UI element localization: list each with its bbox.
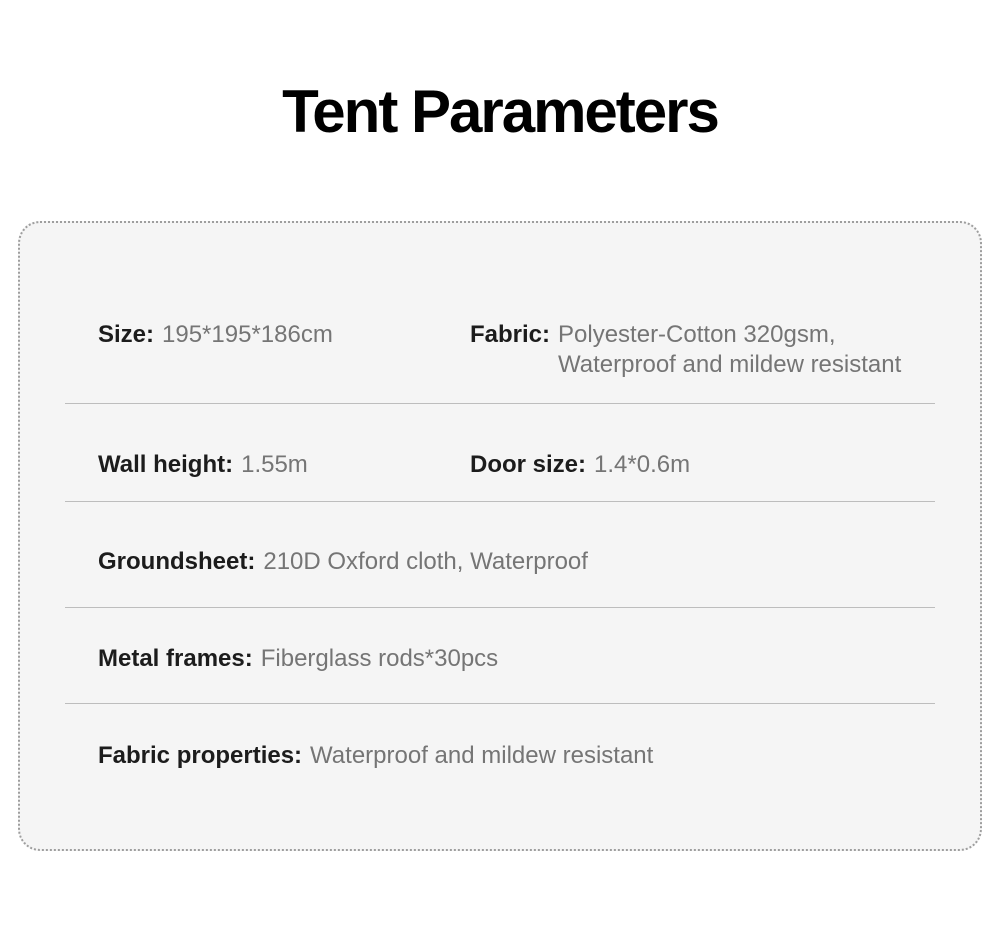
spec-value-metal-frames: Fiberglass rods*30pcs	[261, 644, 498, 674]
page-title: Tent Parameters	[0, 82, 1000, 142]
spec-row-metal-frames: Metal frames: Fiberglass rods*30pcs	[65, 608, 935, 704]
spec-label-fabric: Fabric:	[470, 320, 550, 350]
spec-row-wallheight-doorsize: Wall height: 1.55m Door size: 1.4*0.6m	[65, 404, 935, 502]
spec-value-size: 195*195*186cm	[162, 320, 333, 350]
spec-item-fabric-properties: Fabric properties: Waterproof and mildew…	[98, 741, 653, 771]
spec-item-groundsheet: Groundsheet: 210D Oxford cloth, Waterpro…	[98, 547, 588, 577]
spec-label-groundsheet: Groundsheet:	[98, 547, 255, 577]
spec-item-door-size: Door size: 1.4*0.6m	[470, 450, 690, 480]
spec-item-size: Size: 195*195*186cm	[98, 320, 470, 350]
spec-value-groundsheet: 210D Oxford cloth, Waterproof	[263, 547, 588, 577]
spec-item-fabric: Fabric: Polyester-Cotton 320gsm, Waterpr…	[470, 320, 935, 380]
spec-label-metal-frames: Metal frames:	[98, 644, 253, 674]
spec-label-wall-height: Wall height:	[98, 450, 233, 480]
spec-label-door-size: Door size:	[470, 450, 586, 480]
spec-label-fabric-properties: Fabric properties:	[98, 741, 302, 771]
spec-row-fabric-properties: Fabric properties: Waterproof and mildew…	[65, 704, 935, 849]
spec-item-metal-frames: Metal frames: Fiberglass rods*30pcs	[98, 644, 498, 674]
spec-item-wall-height: Wall height: 1.55m	[98, 450, 470, 480]
spec-row-groundsheet: Groundsheet: 210D Oxford cloth, Waterpro…	[65, 502, 935, 608]
spec-row-size-fabric: Size: 195*195*186cm Fabric: Polyester-Co…	[65, 223, 935, 404]
spec-value-fabric-properties: Waterproof and mildew resistant	[310, 741, 653, 771]
spec-value-door-size: 1.4*0.6m	[594, 450, 690, 480]
spec-value-fabric: Polyester-Cotton 320gsm, Waterproof and …	[558, 320, 935, 380]
spec-value-wall-height: 1.55m	[241, 450, 308, 480]
tent-parameters-card: Size: 195*195*186cm Fabric: Polyester-Co…	[18, 221, 982, 851]
spec-label-size: Size:	[98, 320, 154, 350]
